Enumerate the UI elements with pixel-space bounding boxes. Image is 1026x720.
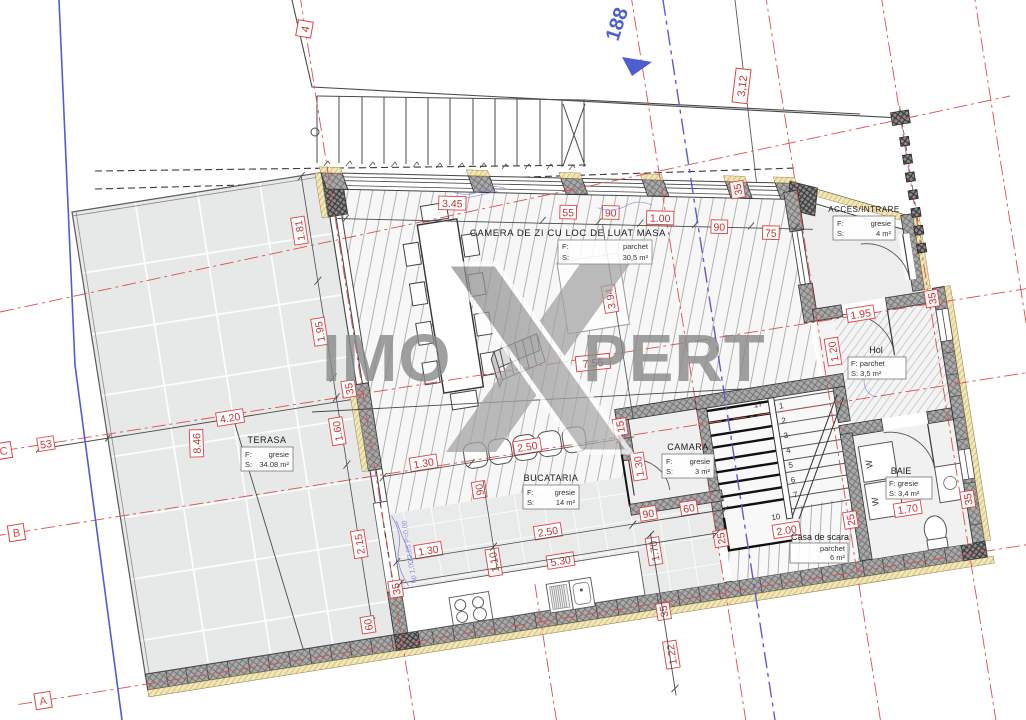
svg-text:Casa de scara: Casa de scara bbox=[791, 532, 849, 542]
svg-text:BAIE: BAIE bbox=[891, 466, 912, 476]
svg-text:IMO: IMO bbox=[322, 321, 452, 396]
svg-text:14 m²: 14 m² bbox=[556, 498, 576, 507]
svg-text:55: 55 bbox=[562, 207, 574, 219]
svg-text:60: 60 bbox=[362, 618, 376, 632]
svg-text:25: 25 bbox=[845, 513, 859, 527]
svg-text:F: parchet: F: parchet bbox=[851, 359, 886, 368]
svg-text:ACCES/INTRARE: ACCES/INTRARE bbox=[828, 205, 899, 214]
svg-text:TERASA: TERASA bbox=[247, 435, 286, 445]
svg-text:F:: F: bbox=[527, 488, 534, 497]
svg-text:gresie: gresie bbox=[269, 450, 289, 459]
svg-text:6 m²: 6 m² bbox=[830, 553, 846, 562]
svg-text:S:: S: bbox=[562, 253, 569, 262]
svg-text:PERT: PERT bbox=[583, 321, 766, 396]
svg-text:75: 75 bbox=[765, 228, 777, 240]
svg-text:BUCATARIA: BUCATARIA bbox=[524, 473, 579, 483]
svg-text:S:: S: bbox=[666, 467, 673, 476]
svg-text:F:: F: bbox=[562, 242, 569, 251]
svg-text:90: 90 bbox=[713, 222, 725, 234]
svg-text:90: 90 bbox=[642, 507, 656, 521]
svg-text:34.08 m²: 34.08 m² bbox=[259, 460, 289, 469]
svg-text:gresie: gresie bbox=[690, 457, 710, 466]
svg-text:1.00: 1.00 bbox=[650, 213, 671, 225]
svg-text:S:: S: bbox=[245, 460, 252, 469]
svg-text:gresie: gresie bbox=[871, 219, 891, 228]
svg-text:F:: F: bbox=[837, 219, 844, 228]
svg-text:parchet: parchet bbox=[820, 544, 846, 553]
svg-text:35: 35 bbox=[390, 582, 404, 596]
svg-text:25: 25 bbox=[715, 531, 729, 545]
svg-text:30,5 m²: 30,5 m² bbox=[623, 253, 649, 262]
svg-text:S: 3,4 m²: S: 3,4 m² bbox=[889, 489, 920, 498]
svg-text:S:: S: bbox=[837, 229, 844, 238]
svg-text:4 m²: 4 m² bbox=[876, 229, 892, 238]
svg-text:Hol: Hol bbox=[869, 345, 883, 355]
svg-text:35: 35 bbox=[962, 492, 976, 506]
svg-text:CAMARA: CAMARA bbox=[667, 442, 709, 452]
svg-text:35: 35 bbox=[732, 183, 746, 197]
svg-text:35: 35 bbox=[658, 604, 672, 618]
svg-text:8.46: 8.46 bbox=[191, 433, 204, 454]
svg-text:53: 53 bbox=[39, 438, 53, 452]
svg-text:S:: S: bbox=[527, 498, 534, 507]
svg-text:parchet: parchet bbox=[623, 242, 649, 251]
svg-text:F:: F: bbox=[245, 450, 252, 459]
svg-text:F:: F: bbox=[666, 457, 673, 466]
svg-text:35: 35 bbox=[926, 292, 940, 306]
svg-text:F: gresie: F: gresie bbox=[889, 479, 918, 488]
svg-text:CAMERA DE ZI CU LOC DE LUAT MA: CAMERA DE ZI CU LOC DE LUAT MASA bbox=[470, 228, 666, 239]
svg-text:S: 3,5 m²: S: 3,5 m² bbox=[851, 369, 882, 378]
svg-text:3 m²: 3 m² bbox=[695, 467, 711, 476]
svg-text:gresie: gresie bbox=[555, 488, 575, 497]
svg-text:60: 60 bbox=[682, 502, 696, 516]
svg-text:3.45: 3.45 bbox=[442, 198, 463, 210]
